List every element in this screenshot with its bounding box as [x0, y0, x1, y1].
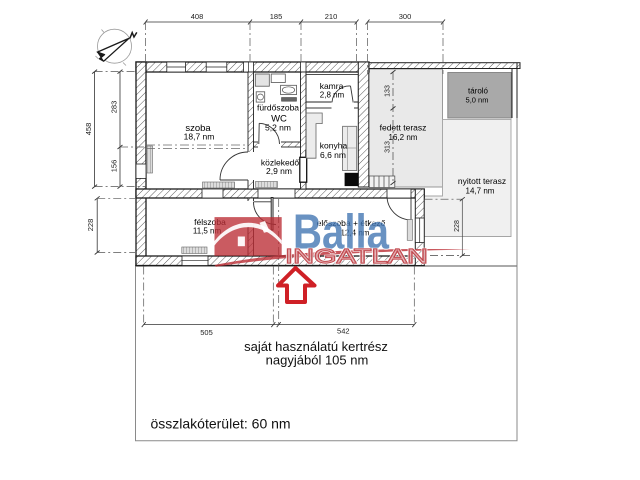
- svg-text:133: 133: [385, 85, 392, 97]
- svg-text:458: 458: [84, 123, 93, 136]
- svg-text:nagyjából 105 nm: nagyjából 105 nm: [266, 353, 369, 368]
- svg-text:2,9 nm: 2,9 nm: [266, 166, 292, 176]
- svg-text:18,7 nm: 18,7 nm: [184, 132, 215, 142]
- svg-text:6,6 nm: 6,6 nm: [320, 150, 346, 160]
- svg-text:228: 228: [454, 220, 461, 232]
- svg-text:nyitott terasz: nyitott terasz: [458, 176, 506, 186]
- svg-text:összlakóterület: 60 nm: összlakóterület: 60 nm: [151, 416, 291, 432]
- svg-text:210: 210: [325, 12, 338, 21]
- svg-text:5,0 nm: 5,0 nm: [466, 96, 489, 105]
- svg-text:fürdőszoba: fürdőszoba: [257, 103, 299, 113]
- svg-text:300: 300: [399, 12, 412, 21]
- svg-text:542: 542: [337, 327, 350, 336]
- svg-text:5,2 nm: 5,2 nm: [265, 123, 291, 133]
- svg-text:2,8 nm: 2,8 nm: [320, 91, 345, 100]
- svg-text:14,7 nm: 14,7 nm: [466, 187, 495, 196]
- svg-text:313: 313: [385, 141, 392, 153]
- svg-text:INGATLAN: INGATLAN: [285, 246, 428, 268]
- svg-text:505: 505: [200, 328, 213, 337]
- svg-text:408: 408: [191, 12, 204, 21]
- svg-text:228: 228: [86, 219, 95, 232]
- svg-text:tároló: tároló: [468, 87, 489, 96]
- svg-text:156: 156: [110, 160, 119, 173]
- svg-text:283: 283: [110, 101, 119, 114]
- svg-text:185: 185: [270, 12, 283, 21]
- svg-text:konyha: konyha: [320, 141, 348, 151]
- svg-text:fedett terasz: fedett terasz: [380, 123, 427, 133]
- svg-text:kamra: kamra: [320, 81, 344, 91]
